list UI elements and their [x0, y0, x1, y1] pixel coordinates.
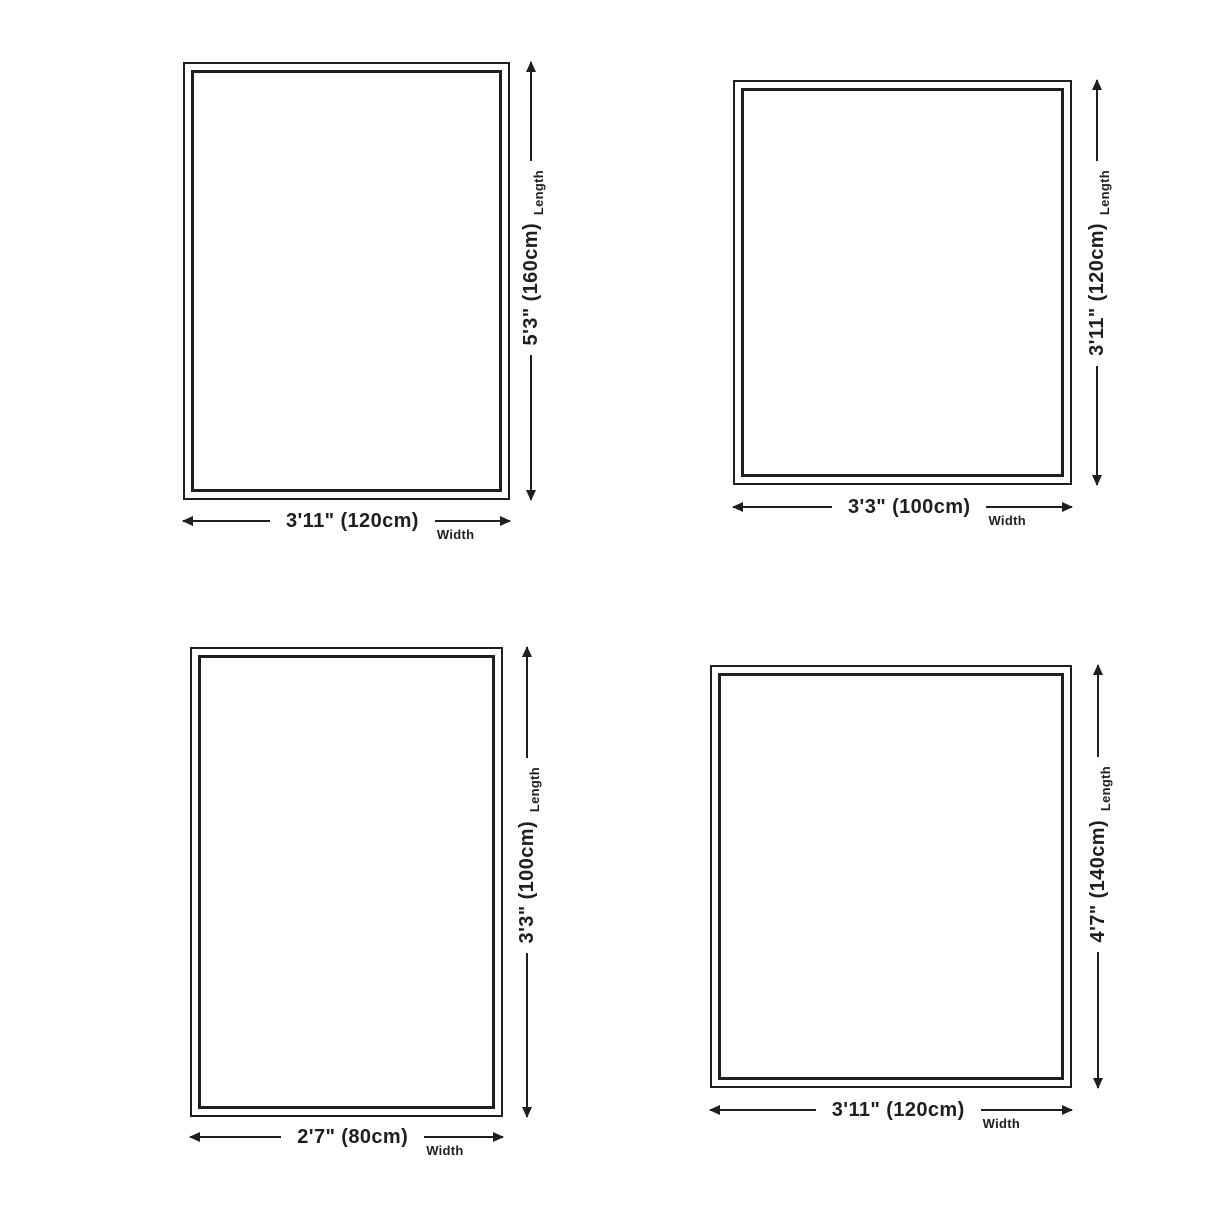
- width-arrow-left-icon: [733, 506, 832, 508]
- width-label: Width: [426, 1143, 463, 1158]
- width-arrow-right-icon: Width: [981, 1109, 1072, 1111]
- width-value: 3'11" (120cm): [832, 1099, 965, 1122]
- rug-outline: [190, 647, 503, 1117]
- width-label: Width: [988, 513, 1025, 528]
- length-label: Length: [1098, 766, 1113, 811]
- rug-inner-border: [741, 88, 1064, 477]
- width-dimension: 3'11" (120cm) Width: [710, 1096, 1072, 1124]
- rug-outline: [733, 80, 1072, 485]
- length-dimension: Length 3'11" (120cm): [1077, 80, 1117, 485]
- length-value: 5'3" (160cm): [520, 223, 543, 345]
- length-value: 3'3" (100cm): [516, 821, 539, 943]
- rug-diagram-top-right: Length 3'11" (120cm) 3'3" (100cm) Width: [733, 80, 1072, 485]
- length-arrow-up-icon: [1097, 665, 1099, 757]
- width-dimension: 2'7" (80cm) Width: [190, 1123, 503, 1151]
- length-arrow-up-icon: [1096, 80, 1098, 161]
- rug-diagram-bottom-right: Length 4'7" (140cm) 3'11" (120cm) Width: [710, 665, 1072, 1088]
- length-dimension: Length 3'3" (100cm): [507, 647, 547, 1117]
- length-arrow-down-icon: [530, 355, 532, 500]
- width-arrow-left-icon: [190, 1136, 281, 1138]
- width-value: 3'11" (120cm): [286, 510, 419, 533]
- width-dimension: 3'11" (120cm) Width: [183, 507, 510, 535]
- length-arrow-down-icon: [1096, 366, 1098, 485]
- rug-outline: [183, 62, 510, 500]
- rug-inner-border: [191, 70, 502, 492]
- length-label: Length: [1097, 170, 1112, 215]
- width-dimension: 3'3" (100cm) Width: [733, 493, 1072, 521]
- length-dimension: Length 5'3" (160cm): [511, 62, 551, 500]
- rug-diagram-top-left: Length 5'3" (160cm) 3'11" (120cm) Width: [183, 62, 510, 500]
- width-arrow-left-icon: [183, 520, 270, 522]
- length-arrow-down-icon: [526, 953, 528, 1117]
- length-label: Length: [527, 767, 542, 812]
- width-arrow-left-icon: [710, 1109, 816, 1111]
- length-dimension: Length 4'7" (140cm): [1078, 665, 1118, 1088]
- length-arrow-up-icon: [526, 647, 528, 758]
- rug-size-diagram-canvas: Length 5'3" (160cm) 3'11" (120cm) Width …: [0, 0, 1214, 1214]
- rug-inner-border: [198, 655, 495, 1109]
- width-label: Width: [437, 527, 474, 542]
- length-value: 4'7" (140cm): [1087, 820, 1110, 942]
- width-label: Width: [983, 1116, 1020, 1131]
- length-value: 3'11" (120cm): [1086, 223, 1109, 356]
- rug-inner-border: [718, 673, 1064, 1080]
- length-label: Length: [531, 170, 546, 215]
- width-value: 2'7" (80cm): [297, 1126, 408, 1149]
- rug-diagram-bottom-left: Length 3'3" (100cm) 2'7" (80cm) Width: [190, 647, 503, 1117]
- width-value: 3'3" (100cm): [848, 496, 970, 519]
- width-arrow-right-icon: Width: [986, 506, 1072, 508]
- length-arrow-down-icon: [1097, 952, 1099, 1088]
- rug-outline: [710, 665, 1072, 1088]
- width-arrow-right-icon: Width: [424, 1136, 503, 1138]
- width-arrow-right-icon: Width: [435, 520, 510, 522]
- length-arrow-up-icon: [530, 62, 532, 161]
